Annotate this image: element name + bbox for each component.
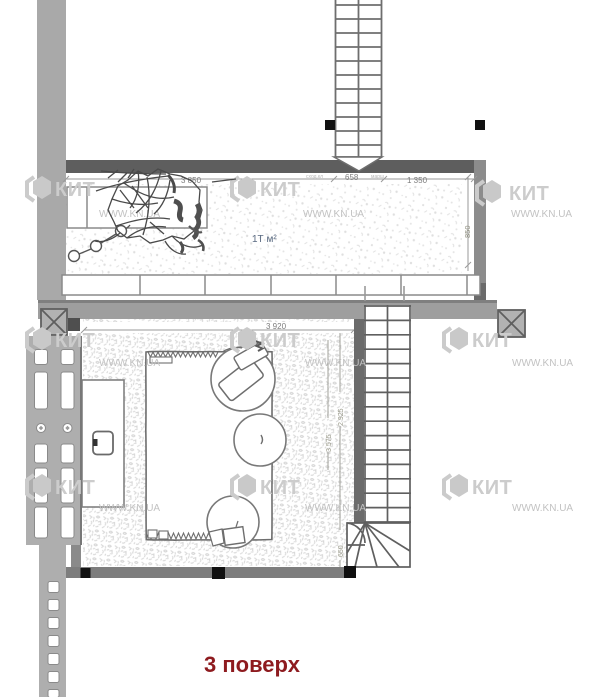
svg-text:658: 658 (345, 173, 359, 182)
svg-text:WWW.KN.UA: WWW.KN.UA (512, 503, 573, 514)
svg-text:КИТ: КИТ (260, 179, 300, 201)
svg-text:WWW.KN.UA: WWW.KN.UA (511, 209, 572, 220)
svg-text:WWW.KN.UA: WWW.KN.UA (99, 358, 160, 369)
svg-text:КИТ: КИТ (472, 330, 512, 352)
svg-text:WWW.KN.UA: WWW.KN.UA (305, 358, 366, 369)
svg-text:КИТ: КИТ (55, 477, 95, 499)
svg-text:КИТ: КИТ (509, 183, 549, 205)
svg-text:WWW.KN.UA: WWW.KN.UA (303, 209, 364, 220)
svg-text:марш: марш (371, 174, 384, 180)
svg-text:КИТ: КИТ (260, 330, 300, 352)
svg-text:сход.кл: сход.кл (306, 174, 323, 180)
svg-text:1Т м²: 1Т м² (252, 234, 277, 245)
svg-text:3 поверх: 3 поверх (204, 652, 301, 677)
svg-text:WWW.KN.UA: WWW.KN.UA (305, 503, 366, 514)
svg-text:1 350: 1 350 (407, 176, 428, 185)
svg-text:КИТ: КИТ (55, 179, 95, 201)
svg-text:КИТ: КИТ (472, 477, 512, 499)
svg-text:КИТ: КИТ (55, 330, 95, 352)
svg-text:3 575: 3 575 (326, 434, 333, 452)
svg-text:850: 850 (463, 225, 472, 238)
svg-text:2 925: 2 925 (338, 408, 345, 426)
svg-text:650: 650 (338, 545, 345, 557)
svg-text:WWW.KN.UA: WWW.KN.UA (99, 503, 160, 514)
svg-text:WWW.KN.UA: WWW.KN.UA (512, 358, 573, 369)
svg-text:КИТ: КИТ (260, 477, 300, 499)
